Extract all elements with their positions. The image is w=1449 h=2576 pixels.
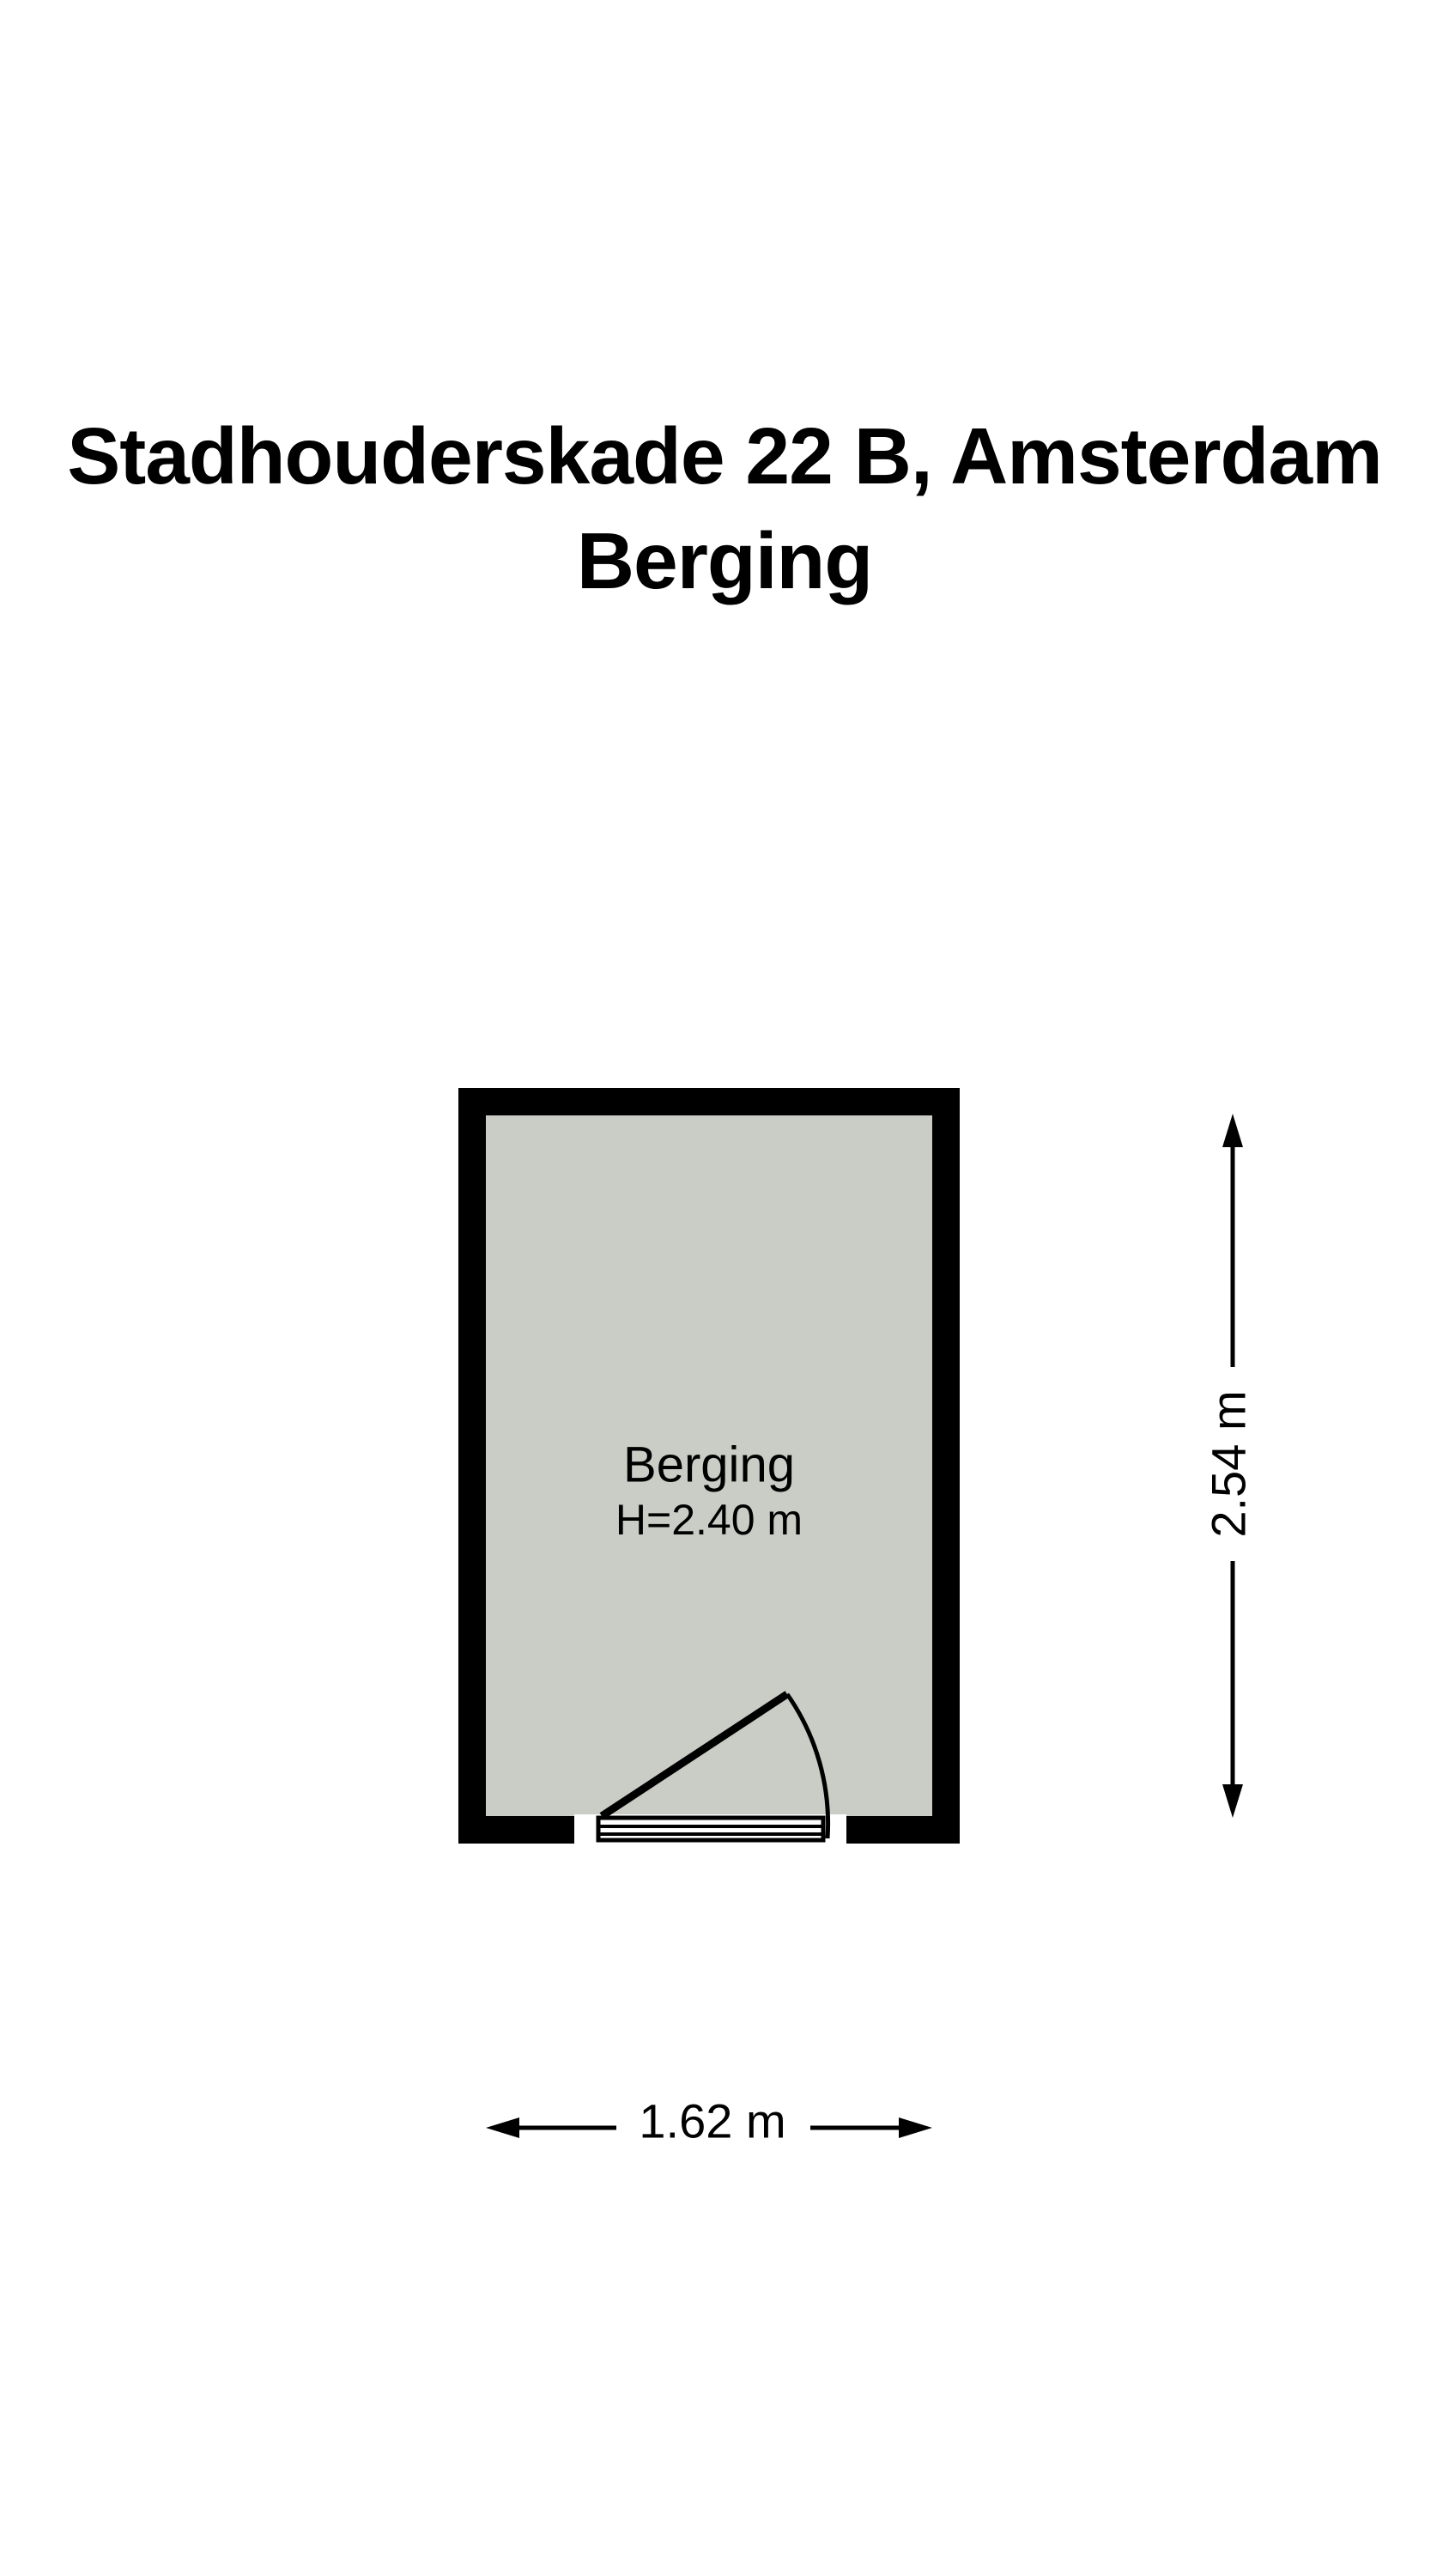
room-name-label: Berging — [623, 1437, 795, 1494]
floorplan-drawing — [0, 0, 1449, 2576]
door-threshold — [598, 1818, 823, 1840]
floorplan-page: Stadhouderskade 22 B, Amsterdam Berging — [0, 0, 1449, 2576]
arrow-down-icon — [1222, 1784, 1243, 1818]
room-ceiling-height-label: H=2.40 m — [615, 1495, 803, 1545]
arrow-right-icon — [899, 2117, 932, 2138]
vertical-dimension-label: 2.54 m — [1201, 1390, 1257, 1537]
horizontal-dimension-label: 1.62 m — [639, 2093, 785, 2149]
arrow-left-icon — [486, 2117, 519, 2138]
